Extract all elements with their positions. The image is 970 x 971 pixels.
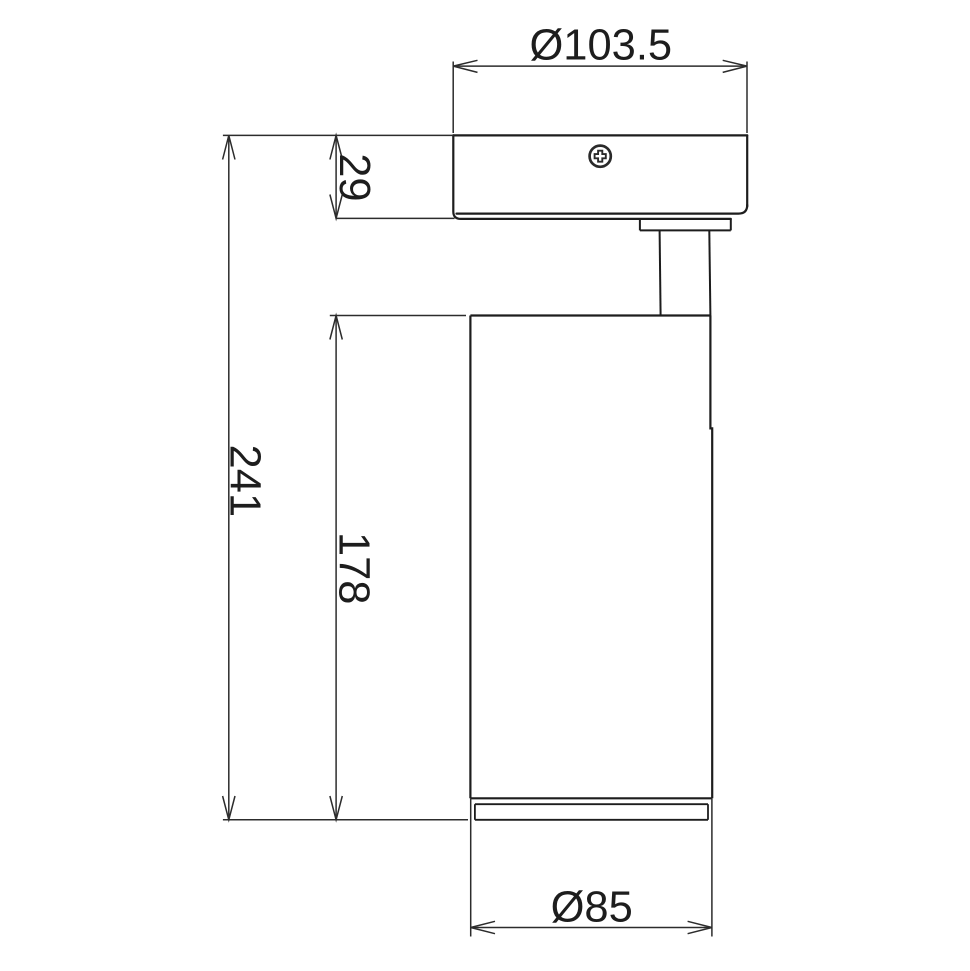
svg-text:Ø85: Ø85 [551,884,633,932]
svg-text:29: 29 [330,153,378,201]
svg-text:178: 178 [330,532,378,605]
svg-text:241: 241 [221,445,269,518]
svg-text:Ø103.5: Ø103.5 [529,22,672,70]
